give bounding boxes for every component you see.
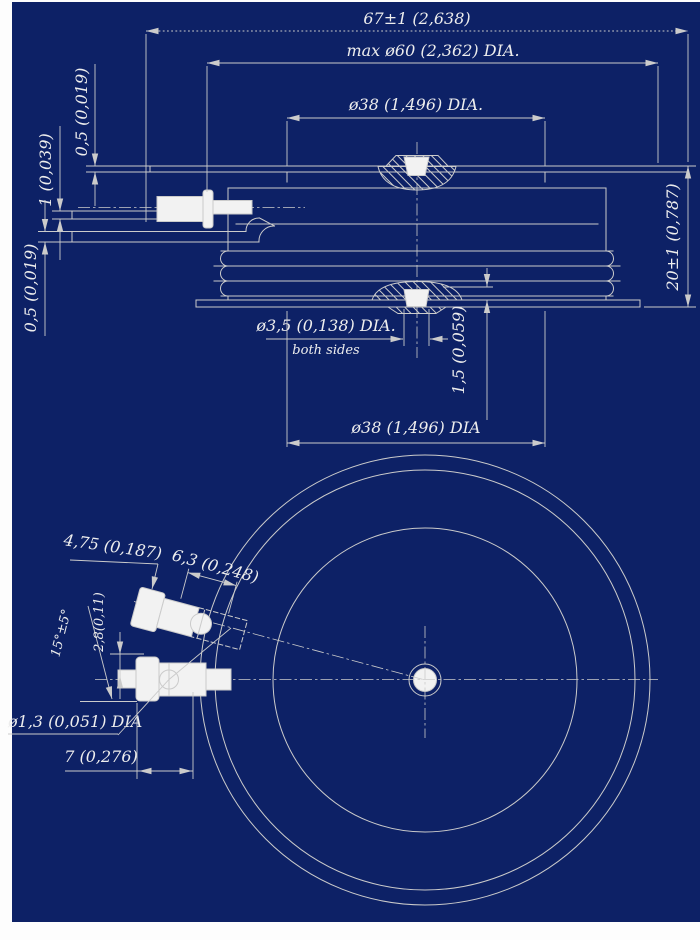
cathode-lead-thickness-label: 0,5 (0,019) (21, 244, 40, 333)
center-hole-note-label: both sides (292, 343, 360, 358)
top-center-hole (404, 157, 429, 176)
engineering-drawing: 67±1 (2,638) max ø60 (2,362) DIA. ø38 (1… (0, 0, 700, 940)
terminal-length-label: 7 (0,276) (64, 747, 138, 766)
top-pole-dia-label: ø38 (1,496) DIA. (348, 95, 483, 114)
gate-connector-body (157, 197, 205, 222)
flange-thickness-label: 0,5 (0,019) (72, 68, 91, 157)
blueprint-field (12, 2, 700, 922)
max-body-dia-label: max ø60 (2,362) DIA. (346, 41, 519, 60)
overall-width-label: 67±1 (2,638) (363, 9, 470, 28)
lower-terminal-stub (118, 670, 137, 688)
bottom-pole-dia-label: ø38 (1,496) DIA (350, 418, 480, 437)
height-label: 20±1 (0,787) (663, 183, 682, 291)
center-hole-dia-label: ø3,5 (0,138) DIA. (255, 316, 395, 335)
gate-connector-pin (213, 201, 252, 215)
lower-terminal-pin (206, 669, 231, 690)
gate-connector-flange (203, 190, 213, 228)
terminal-offset-label: 2,8(0,11) (92, 592, 107, 653)
drawing-page: 67±1 (2,638) max ø60 (2,362) DIA. ø38 (1… (0, 0, 700, 940)
bottom-center-hole (404, 290, 429, 307)
terminal-hole-dia-label: ø1,3 (0,051) DIA (7, 712, 142, 731)
boss-height-label: 1,5 (0,059) (449, 306, 468, 395)
gate-lead-thickness-label: 1 (0,039) (36, 133, 55, 207)
